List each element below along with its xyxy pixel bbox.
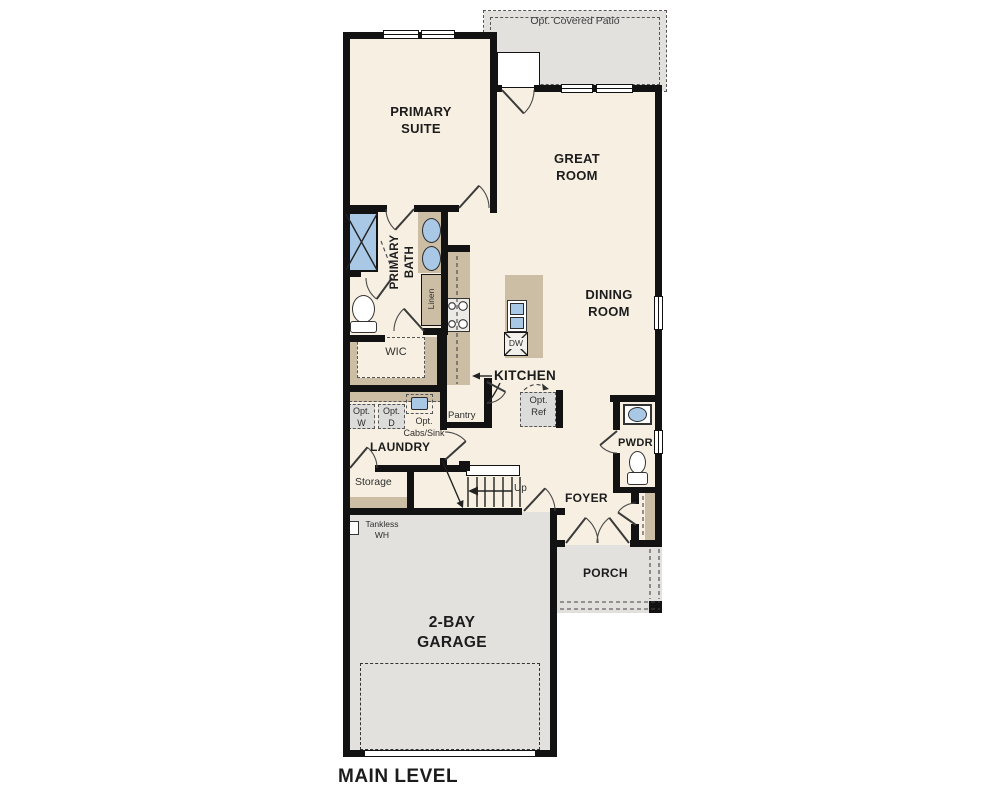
garage-parking-dashed-outline (360, 663, 540, 750)
floor-plan: Opt. Covered Patio PRIMARY SUITE GREAT R… (0, 0, 1000, 800)
wall (343, 750, 365, 757)
wall (557, 540, 565, 547)
wall (556, 390, 563, 428)
wall (414, 205, 459, 212)
storage-label: Storage (355, 476, 392, 490)
opt-cabs-sink-label: Opt. Cabs/Sink (397, 416, 451, 439)
wall (631, 493, 639, 504)
wic-label: WIC (378, 345, 414, 359)
patio-label: Opt. Covered Patio (500, 15, 650, 29)
wall (343, 508, 522, 515)
range-icon (445, 298, 470, 332)
pwdr-label: PWDR (618, 436, 653, 450)
wall (441, 212, 448, 335)
opt-ref-label: Opt. Ref (522, 395, 555, 420)
patio-step (497, 52, 540, 88)
great-room-label: GREAT ROOM (544, 151, 610, 185)
wall (343, 32, 497, 39)
window (654, 430, 663, 454)
wall (343, 335, 385, 342)
wall (343, 385, 447, 392)
opt-washer-label: Opt. W (349, 406, 374, 429)
wall (441, 245, 470, 252)
window (561, 84, 593, 93)
wall (490, 85, 502, 92)
pwdr-sink-icon (628, 407, 647, 422)
wall (550, 508, 557, 757)
window-pane-line (562, 88, 592, 90)
laundry-sink-icon (411, 397, 428, 410)
dishwasher-label: DW (505, 338, 527, 349)
wall (484, 378, 492, 428)
wall (630, 540, 662, 547)
linen-label: Linen (426, 281, 438, 317)
wall (613, 395, 620, 430)
island-sink-bowl-bottom (510, 317, 524, 329)
bath-toilet-tank-icon (350, 321, 377, 333)
stairs-landing (466, 465, 520, 476)
porch-label: PORCH (583, 566, 628, 582)
porch-column (649, 601, 662, 613)
wall (375, 465, 466, 472)
window-pane-line (384, 34, 418, 36)
window (421, 30, 455, 39)
wall (535, 750, 557, 757)
primary-bath-label: PRIMARY BATH (388, 225, 424, 299)
pantry-label: Pantry (448, 410, 475, 422)
foyer-label: FOYER (565, 491, 608, 507)
window-pane-line (658, 297, 660, 329)
vanity-sink-right-icon (422, 246, 441, 271)
wall (343, 32, 350, 757)
window (596, 84, 633, 93)
wall (343, 205, 387, 212)
vanity-sink-left-icon (422, 218, 441, 243)
window-pane-line (597, 88, 632, 90)
tankless-wh-label: Tankless WH (359, 519, 405, 541)
kitchen-label: KITCHEN (494, 367, 556, 385)
garage-label: 2-BAY GARAGE (412, 613, 492, 653)
dining-room-label: DINING ROOM (576, 287, 642, 321)
storage-shelf (350, 497, 408, 508)
wall (423, 328, 448, 335)
pwdr-toilet-tank-icon (627, 472, 648, 485)
stair-newel-post (459, 461, 470, 471)
window (383, 30, 419, 39)
wall (437, 335, 447, 392)
plan-title: MAIN LEVEL (338, 765, 458, 790)
laundry-label: LAUNDRY (370, 440, 430, 456)
window-pane-line (422, 34, 454, 36)
garage-door (365, 750, 535, 757)
primary-suite-label: PRIMARY SUITE (375, 104, 467, 138)
bath-toilet-bowl-icon (352, 295, 375, 323)
wall (343, 465, 349, 472)
stairs-up-label: Up (514, 482, 527, 495)
wall (631, 524, 639, 540)
window (654, 296, 663, 330)
pwdr-toilet-bowl-icon (629, 451, 646, 474)
island-sink-bowl-top (510, 303, 524, 315)
wall (490, 32, 497, 213)
wall (343, 271, 361, 277)
foyer-coat-closet (645, 493, 655, 540)
window-pane-line (658, 431, 660, 453)
